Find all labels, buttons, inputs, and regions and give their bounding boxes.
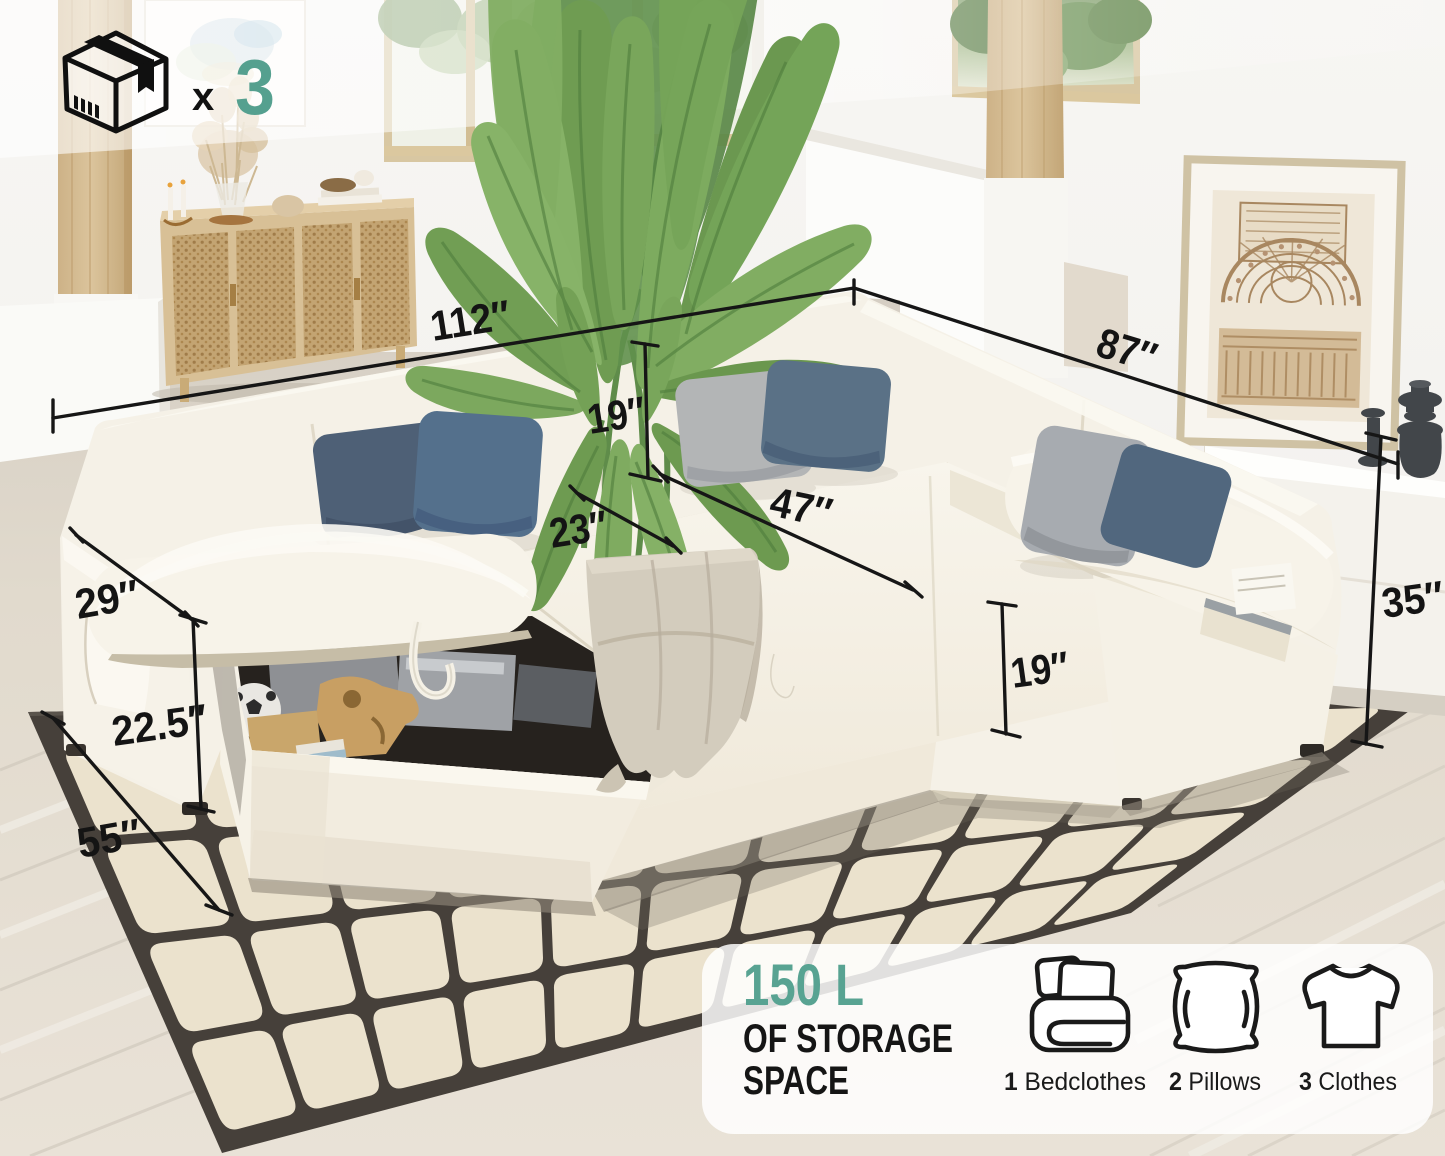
- svg-text:3: 3: [235, 43, 275, 131]
- svg-text:1 Bedclothes: 1 Bedclothes: [1004, 1068, 1146, 1096]
- svg-text:3 Clothes: 3 Clothes: [1299, 1068, 1397, 1096]
- svg-text:2 Pillows: 2 Pillows: [1169, 1068, 1261, 1096]
- svg-text:19″: 19″: [584, 387, 649, 442]
- svg-text:19″: 19″: [1008, 642, 1072, 697]
- svg-text:x: x: [192, 75, 214, 119]
- svg-text:23″: 23″: [546, 501, 611, 556]
- svg-text:OF STORAGE: OF STORAGE: [743, 1017, 953, 1061]
- svg-text:150 L: 150 L: [743, 953, 864, 1018]
- svg-text:35″: 35″: [1379, 572, 1445, 627]
- svg-text:SPACE: SPACE: [743, 1059, 849, 1103]
